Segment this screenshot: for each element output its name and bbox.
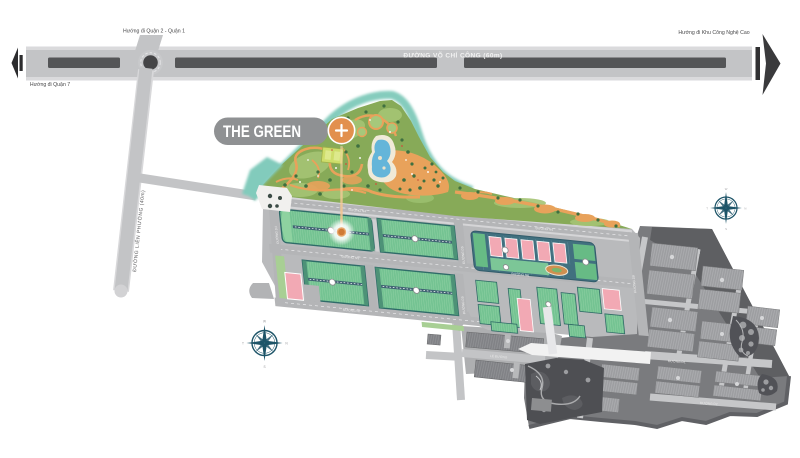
- svg-text:W: W: [263, 320, 266, 324]
- svg-text:THE GREEN: THE GREEN: [223, 123, 301, 141]
- svg-text:T: T: [242, 342, 244, 346]
- svg-text:T: T: [706, 206, 708, 210]
- svg-text:S: S: [263, 365, 265, 369]
- svg-text:S: S: [725, 227, 727, 231]
- svg-text:ĐƯỜNG VÕ CHÍ CÔNG (60m): ĐƯỜNG VÕ CHÍ CÔNG (60m): [403, 51, 502, 60]
- svg-text:W: W: [725, 187, 728, 191]
- svg-text:Hướng đi Quận 2 - Quận 1: Hướng đi Quận 2 - Quận 1: [123, 29, 185, 35]
- svg-text:Hướng đi Quận 7: Hướng đi Quận 7: [30, 82, 70, 88]
- svg-text:N: N: [744, 206, 746, 210]
- svg-text:Hướng đi Khu Công Nghệ Cao: Hướng đi Khu Công Nghệ Cao: [678, 30, 749, 36]
